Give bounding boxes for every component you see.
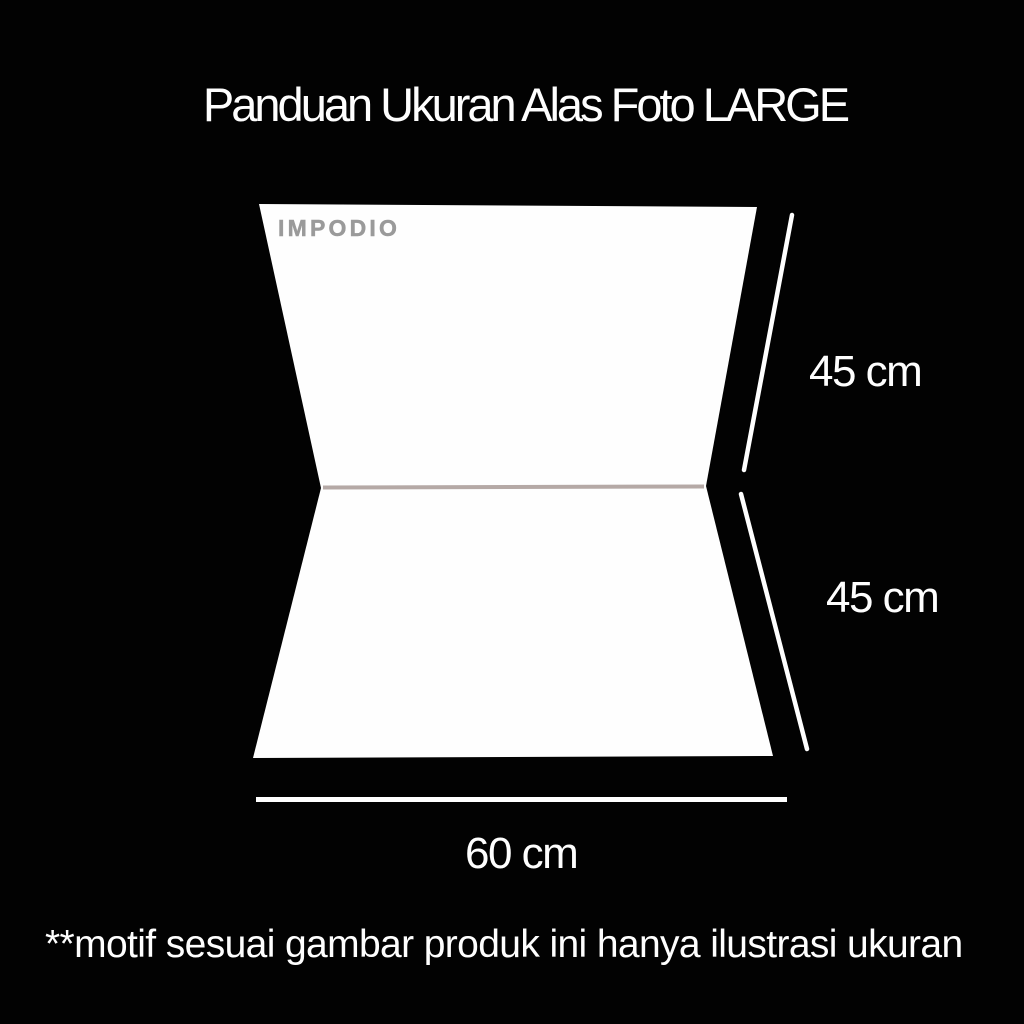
svg-text:45 cm: 45 cm (826, 573, 938, 622)
svg-text:45 cm: 45 cm (809, 347, 921, 396)
svg-text:Panduan Ukuran Alas Foto LARGE: Panduan Ukuran Alas Foto LARGE (203, 78, 849, 131)
svg-text:IMPODIO: IMPODIO (278, 215, 400, 241)
svg-text:60 cm: 60 cm (465, 829, 577, 878)
svg-text:**motif sesuai gambar produk i: **motif sesuai gambar produk ini hanya i… (45, 923, 963, 966)
